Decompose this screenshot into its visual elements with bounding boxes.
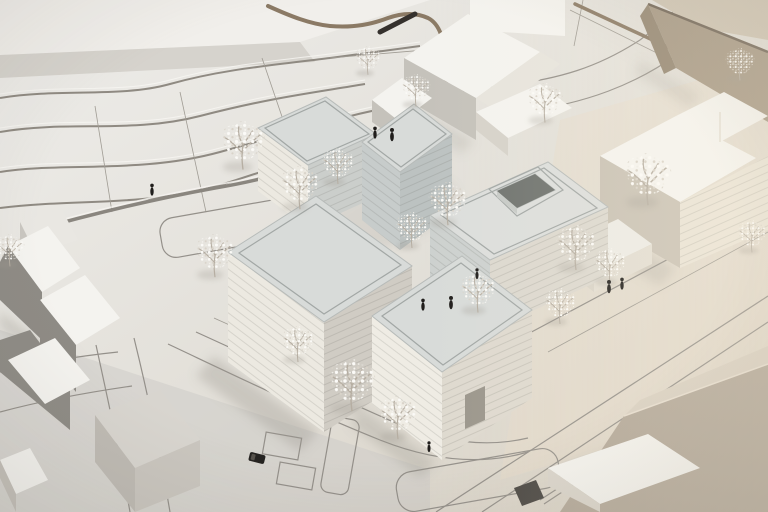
light-overlays — [0, 0, 768, 512]
photo-figure: Aerial photograph of a white architectur… — [0, 0, 768, 512]
architectural-model-photo: Aerial photograph of a white architectur… — [0, 0, 768, 512]
model-scene — [0, 0, 768, 512]
